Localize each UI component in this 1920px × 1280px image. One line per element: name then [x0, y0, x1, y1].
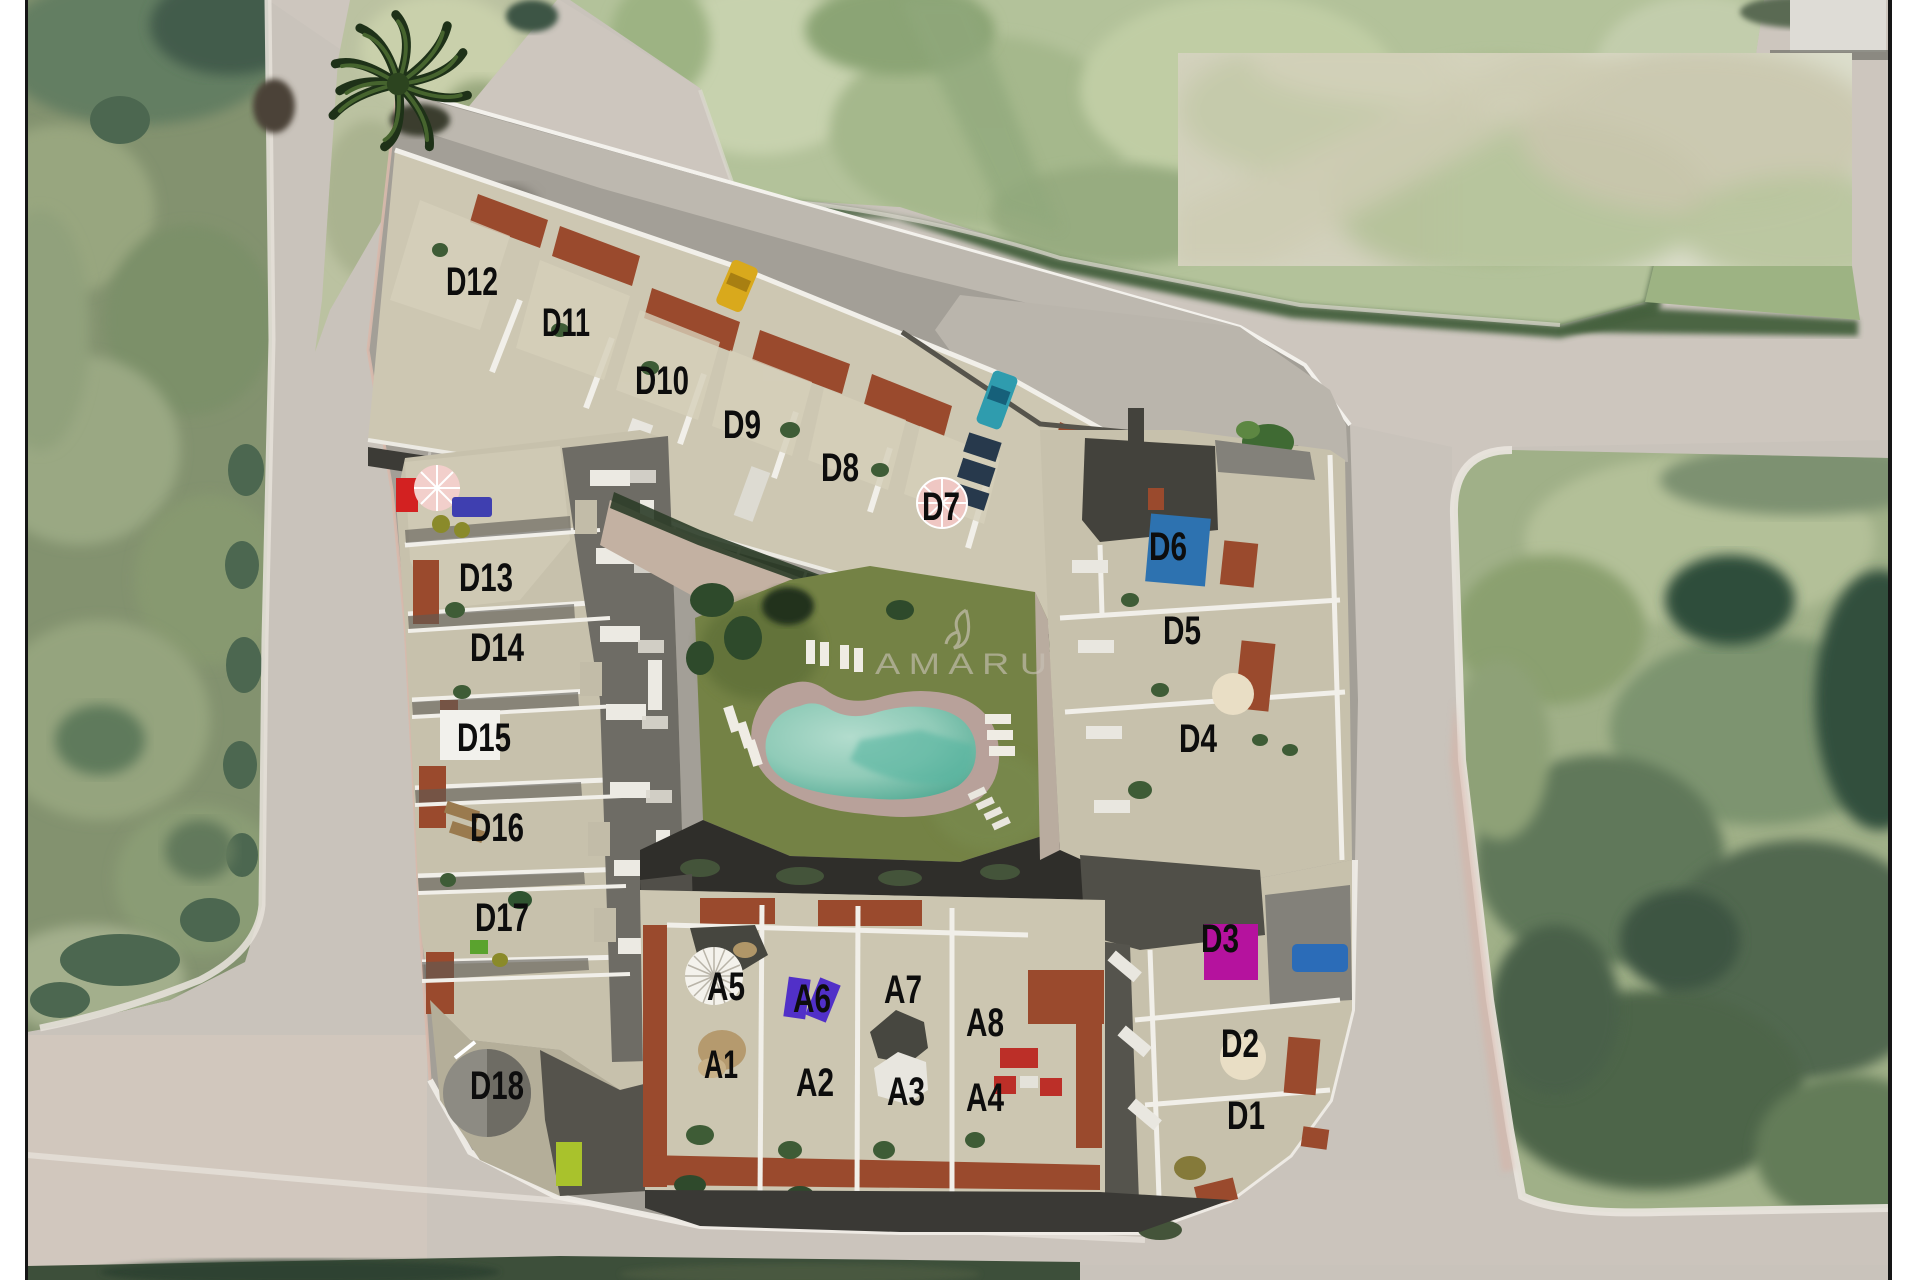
svg-text:A2: A2 — [796, 1061, 834, 1105]
svg-text:D1: D1 — [1227, 1094, 1265, 1138]
svg-text:D9: D9 — [723, 403, 761, 447]
svg-text:A4: A4 — [966, 1076, 1005, 1120]
svg-text:A3: A3 — [887, 1070, 925, 1114]
svg-text:D10: D10 — [635, 359, 689, 403]
svg-text:A1: A1 — [704, 1043, 738, 1087]
svg-text:D18: D18 — [470, 1064, 524, 1108]
svg-text:A5: A5 — [707, 965, 745, 1009]
svg-text:D2: D2 — [1221, 1022, 1259, 1066]
svg-text:D8: D8 — [821, 446, 859, 490]
svg-text:A8: A8 — [966, 1001, 1004, 1045]
svg-text:D11: D11 — [542, 301, 590, 345]
svg-text:D12: D12 — [446, 260, 498, 304]
svg-text:D15: D15 — [457, 716, 511, 760]
svg-text:D13: D13 — [459, 556, 513, 600]
svg-text:D17: D17 — [475, 896, 529, 940]
svg-text:D6: D6 — [1149, 525, 1187, 569]
svg-text:A M A R U: A M A R U — [875, 648, 1047, 681]
svg-text:D16: D16 — [470, 806, 524, 850]
svg-text:D4: D4 — [1179, 717, 1218, 761]
svg-text:D14: D14 — [470, 626, 525, 670]
svg-text:A6: A6 — [793, 977, 831, 1021]
svg-text:D5: D5 — [1163, 609, 1201, 653]
svg-text:D7: D7 — [922, 485, 960, 529]
svg-text:A7: A7 — [884, 968, 922, 1012]
svg-text:D3: D3 — [1201, 917, 1239, 961]
